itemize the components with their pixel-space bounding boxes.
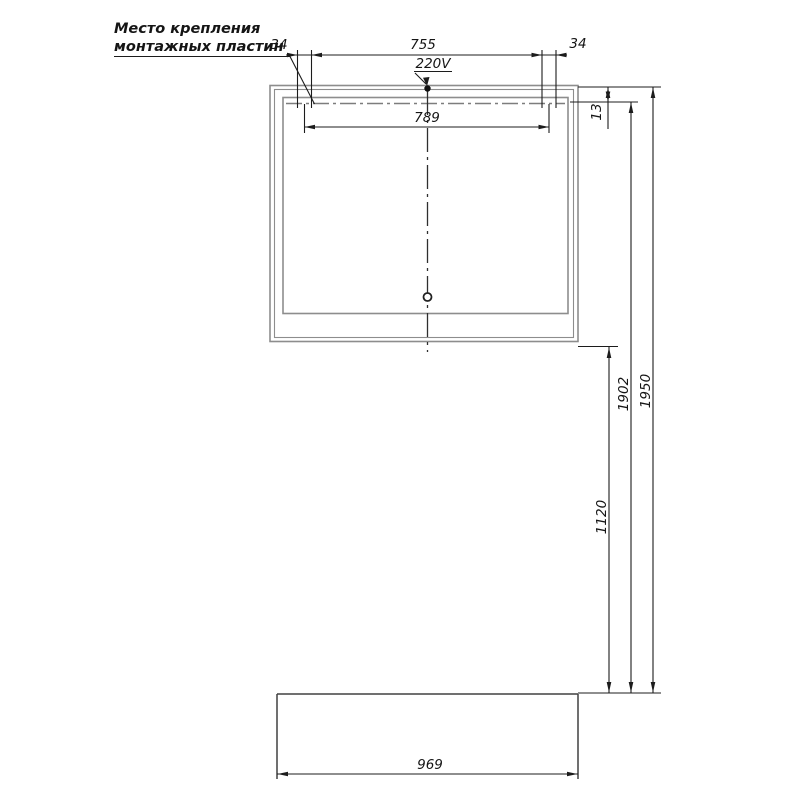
dim-plate-width-left: 34: [270, 37, 287, 53]
dim-mount-line-height: 1902: [616, 377, 632, 411]
dim-plate-width-right: 34: [569, 36, 586, 52]
dim-top-offset: 13: [589, 103, 605, 120]
dimension-lines: [114, 50, 661, 774]
dimension-arrowheads: [278, 53, 656, 777]
dim-cabinet-width: 969: [417, 757, 443, 773]
mirror-inner-rect: [283, 98, 568, 314]
dim-mirror-bottom-height: 1120: [594, 500, 610, 534]
dim-plate-spacing: 755: [410, 37, 436, 53]
technical-drawing: Место крепления монтажных пластин 34 755…: [0, 0, 800, 800]
dim-total-height: 1950: [638, 374, 654, 408]
mounting-note-line1: Место крепления: [114, 21, 260, 37]
dim-plate-centers-span: 789: [414, 110, 440, 126]
power-label: 220V: [415, 56, 452, 72]
switch-location-circle: [424, 293, 432, 301]
mounting-note-line2: монтажных пластин: [114, 39, 284, 55]
power-connection-point: [424, 85, 430, 91]
drawing-canvas: Место крепления монтажных пластин 34 755…: [0, 0, 800, 800]
